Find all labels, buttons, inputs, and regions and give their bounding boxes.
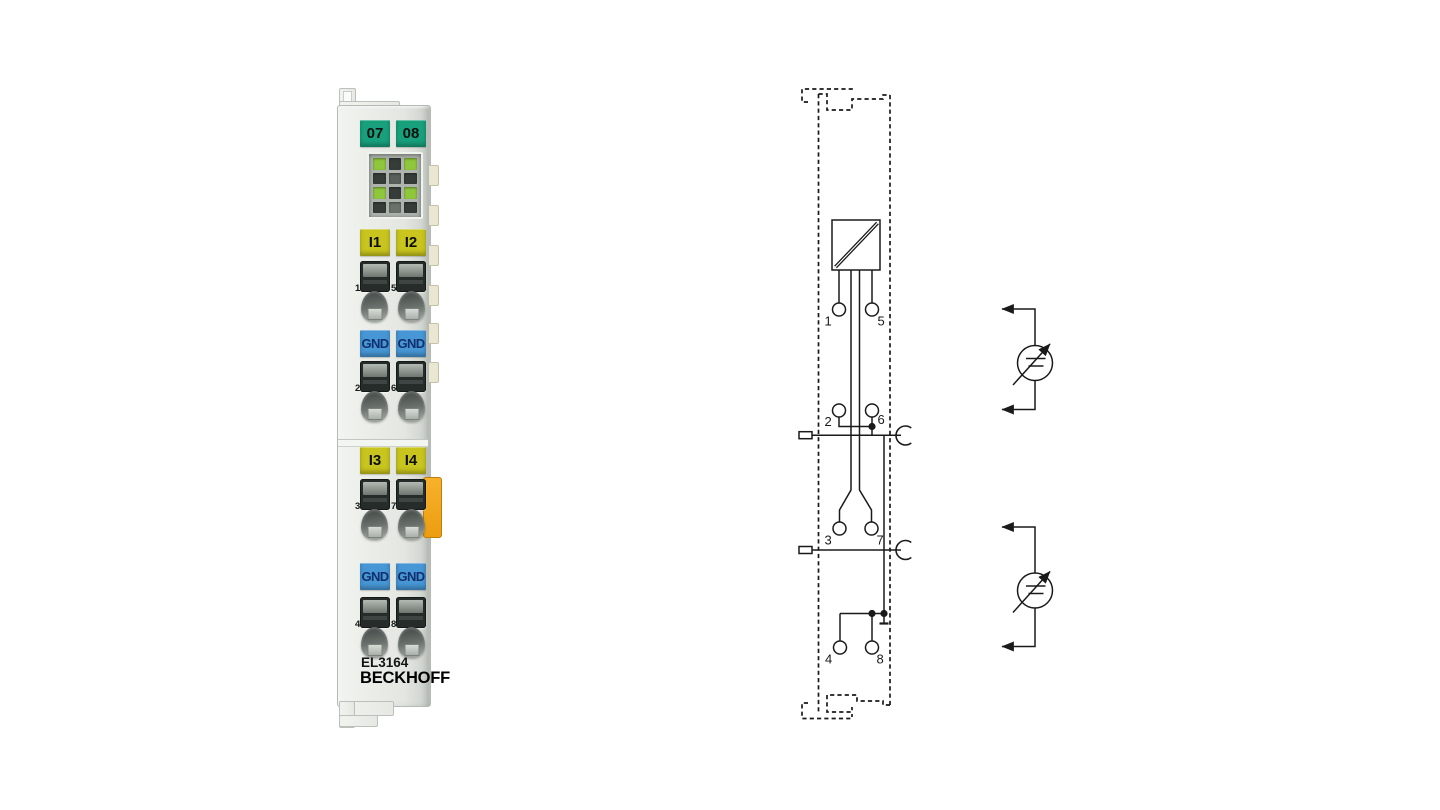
release-knob bbox=[398, 509, 425, 540]
terminal-circle-4 bbox=[834, 641, 847, 654]
channel-label-07: 07 bbox=[360, 120, 390, 147]
diagram-number-3: 3 bbox=[825, 533, 832, 548]
release-knob bbox=[361, 291, 388, 322]
contact-number-5: 5 bbox=[391, 283, 401, 294]
ebus-tab bbox=[429, 165, 439, 186]
junction-dot bbox=[868, 423, 875, 430]
diagram-number-6: 6 bbox=[878, 412, 885, 427]
shield-terminal-rect bbox=[799, 432, 812, 439]
input-label-i4: I4 bbox=[396, 447, 426, 474]
led-off bbox=[404, 173, 417, 185]
shield-bus bbox=[799, 423, 915, 641]
input-label-i3: I3 bbox=[360, 447, 390, 474]
adc-converter-icon bbox=[832, 220, 880, 270]
bottom-latch-foot bbox=[339, 715, 378, 727]
led-off bbox=[389, 158, 402, 170]
ebus-tab bbox=[429, 245, 439, 266]
run-led-green bbox=[373, 187, 386, 199]
brand-logo-text: BECKHOFF bbox=[360, 669, 450, 688]
channel-label-08: 08 bbox=[396, 120, 426, 147]
contact-number-2: 2 bbox=[355, 383, 365, 394]
run-led-green bbox=[373, 158, 386, 170]
shield-terminal-rect bbox=[799, 547, 812, 554]
led-off bbox=[373, 202, 386, 214]
led-off bbox=[404, 202, 417, 214]
page: 07 08 I1 I2 1 5 GND GND bbox=[0, 0, 1440, 810]
release-knob bbox=[361, 509, 388, 540]
contact-number-4: 4 bbox=[355, 619, 365, 630]
contact-number-8: 8 bbox=[391, 619, 401, 630]
input-label-i1: I1 bbox=[360, 229, 390, 256]
run-led-green bbox=[404, 187, 417, 199]
terminal-housing-outline bbox=[802, 89, 890, 719]
led-off bbox=[389, 202, 402, 214]
gnd-label-lower-right: GND bbox=[396, 563, 426, 590]
diagram-number-5: 5 bbox=[878, 314, 885, 329]
diagram-number-4: 4 bbox=[825, 652, 832, 667]
gnd-label-upper-left: GND bbox=[360, 330, 390, 357]
diagram-number-7: 7 bbox=[877, 533, 884, 548]
gnd-label-upper-right: GND bbox=[396, 330, 426, 357]
terminal-circle-3 bbox=[833, 522, 846, 535]
ebus-tab bbox=[429, 362, 439, 383]
adjustable-voltage-source-2 bbox=[1002, 527, 1053, 647]
diagram-number-1: 1 bbox=[825, 314, 832, 329]
housing-seam bbox=[338, 439, 428, 447]
adjustable-voltage-source-1 bbox=[1002, 309, 1053, 410]
led-off bbox=[373, 173, 386, 185]
release-knob bbox=[361, 627, 388, 658]
run-led-green bbox=[404, 158, 417, 170]
model-text: EL3164 bbox=[361, 655, 408, 670]
ebus-tab bbox=[429, 323, 439, 344]
contact-number-1: 1 bbox=[355, 283, 365, 294]
contact-number-3: 3 bbox=[355, 501, 365, 512]
junction-dot bbox=[868, 610, 875, 617]
terminal-points bbox=[833, 303, 879, 654]
contact-number-7: 7 bbox=[391, 501, 401, 512]
terminal-circle-1 bbox=[833, 303, 846, 316]
release-knob bbox=[398, 291, 425, 322]
diagram-number-8: 8 bbox=[877, 652, 884, 667]
terminal-circle-2 bbox=[833, 404, 846, 417]
input-label-i2: I2 bbox=[396, 229, 426, 256]
wiring-diagram: 1 5 2 6 3 7 4 8 bbox=[770, 80, 1120, 750]
release-knob bbox=[361, 391, 388, 422]
ebus-tab bbox=[429, 205, 439, 226]
diagram-number-2: 2 bbox=[825, 414, 832, 429]
led-status-window bbox=[367, 152, 423, 219]
led-off bbox=[389, 187, 402, 199]
release-knob bbox=[398, 627, 425, 658]
contact-number-6: 6 bbox=[391, 383, 401, 394]
ebus-tab bbox=[429, 285, 439, 306]
led-off bbox=[389, 173, 402, 185]
release-knob bbox=[398, 391, 425, 422]
gnd-label-lower-left: GND bbox=[360, 563, 390, 590]
